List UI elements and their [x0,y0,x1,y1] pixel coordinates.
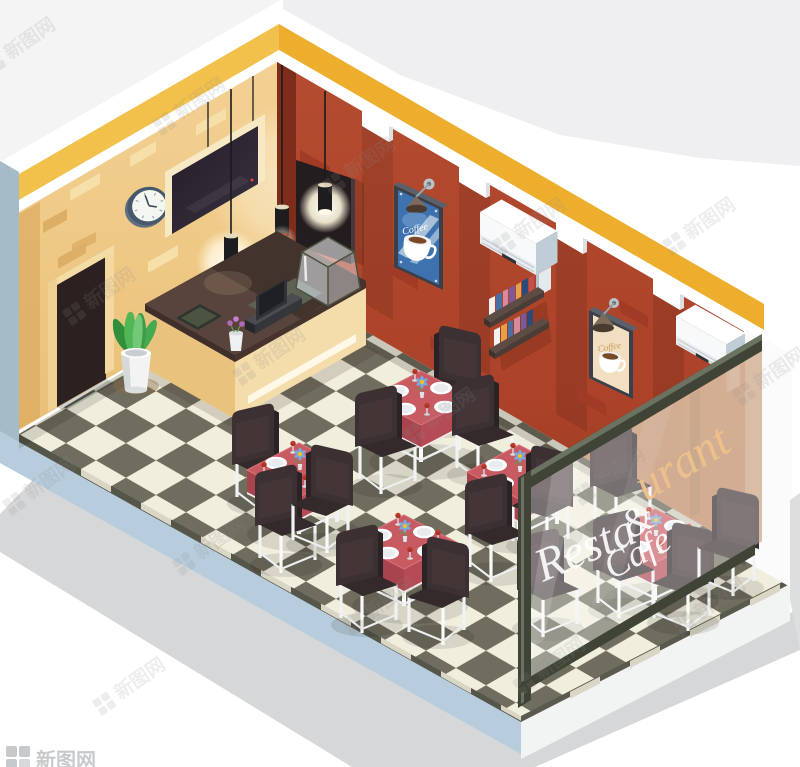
svg-text:新图网: 新图网 [36,748,96,767]
